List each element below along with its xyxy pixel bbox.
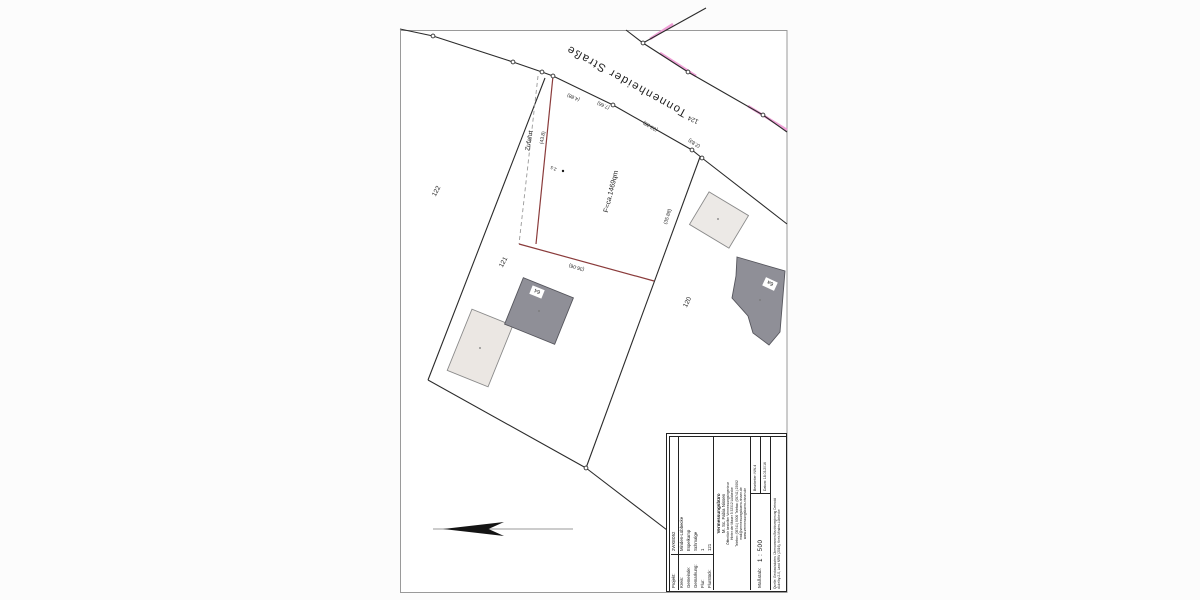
source-line-2: dl-de/by-2-0, Land NRW (2016), Kreis Min…	[777, 438, 781, 589]
tb-label-flur: Flur:	[700, 554, 707, 590]
scale-row: Maßstab: 1 : 500 Bearbeiter: NW-4 Datum:…	[751, 437, 771, 590]
editor-field: Bearbeiter: NW-4	[751, 437, 761, 493]
width-marker-dot	[562, 170, 564, 172]
title-block-content: Projekt: 2WKE052 Kreis: Minden-Lübbecke …	[671, 437, 786, 590]
scale-value: 1 : 500	[757, 540, 764, 568]
tb-value-flur: 1	[701, 549, 706, 554]
source-attribution: Quelle: Geobasisdaten: Übernommen Bezirk…	[771, 437, 790, 590]
tb-value-kreis: Minden-Lübbecke	[680, 517, 685, 554]
tb-label-projekt: Projekt:	[671, 554, 678, 590]
tb-label-gemarkung: Gemarkung:	[693, 554, 700, 590]
survey-plan-page: 64 6a Tonnenheider Straße 124 122 121 12…	[0, 0, 1200, 600]
cadastral-map: 64 6a Tonnenheider Straße 124 122 121 12…	[0, 0, 1200, 600]
tb-value-flurstueck: 121	[708, 544, 713, 554]
tb-value-gemeinde: Espelkamp	[687, 530, 692, 554]
tb-label-flurstueck: Flurstück:	[707, 554, 714, 590]
date-field: Datum: 18.03.2016	[761, 437, 770, 493]
tb-value-projekt: 2WKE052	[672, 532, 677, 554]
tb-row-gemarkung: Gemarkung: Schmalge	[693, 437, 700, 590]
tb-row-kreis: Kreis: Minden-Lübbecke	[679, 437, 686, 590]
tb-row-flurstueck: Flurstück: 121	[707, 437, 714, 590]
editor-date-box: Bearbeiter: NW-4 Datum: 18.03.2016	[751, 437, 770, 494]
surveyor-office-block: Vermessungsbüro M. Sc. Fabia Nissen Öffe…	[714, 437, 751, 590]
tb-row-projekt: Projekt: 2WKE052	[671, 437, 679, 590]
tb-value-gemarkung: Schmalge	[694, 532, 699, 554]
title-block-rows: Projekt: 2WKE052 Kreis: Minden-Lübbecke …	[671, 437, 714, 590]
tb-row-gemeinde: Gemeinde: Espelkamp	[686, 437, 693, 590]
title-block: Projekt: 2WKE052 Kreis: Minden-Lübbecke …	[666, 433, 787, 592]
office-website: www.vermessungsbuero-nissen.de	[743, 437, 747, 590]
scale-label: Maßstab:	[758, 568, 764, 590]
tb-row-flur: Flur: 1	[700, 437, 707, 590]
tb-label-gemeinde: Gemeinde:	[686, 554, 693, 590]
tb-label-kreis: Kreis:	[679, 554, 686, 590]
